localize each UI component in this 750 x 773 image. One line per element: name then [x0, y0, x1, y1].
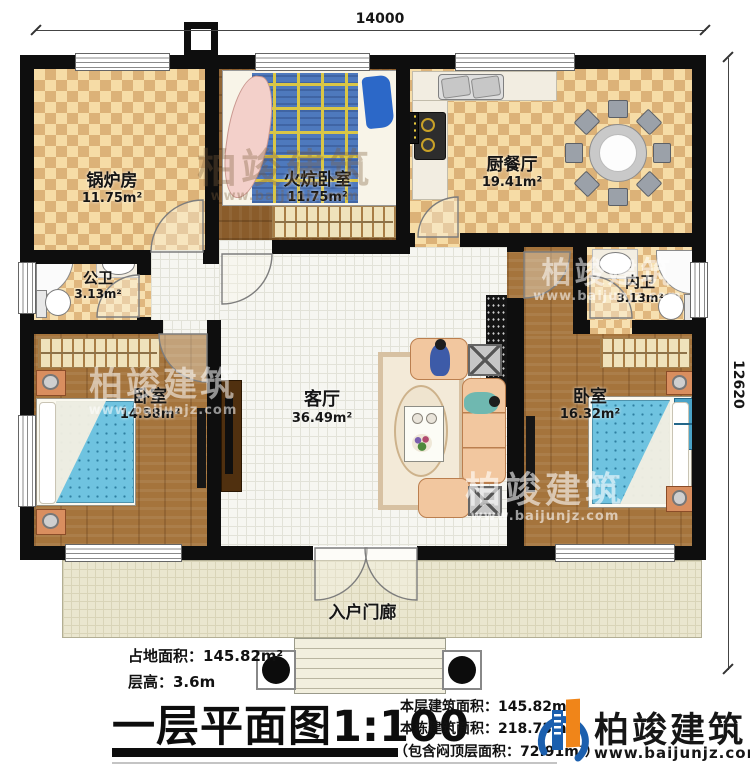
floor-boiler-room: [34, 69, 205, 250]
wall-boiler-kang: [205, 69, 219, 250]
wall-left-seg1: [20, 55, 34, 262]
stove-burner-top: [421, 118, 435, 132]
window-bedroom-left-west: [18, 415, 36, 507]
bedroom-left-nightstand-top: [36, 370, 66, 396]
info-site-area: 占地面积：145.82m²: [128, 645, 283, 666]
bedroom-left-nightstand-bottom: [36, 509, 66, 535]
title-underline-thick: [112, 748, 398, 757]
floor-bedl-doorsill: [163, 320, 207, 334]
bedroom-left-wardrobe: [38, 338, 160, 368]
floorplan-canvas: 锅炉房 11.75m² 火炕卧室 11.75m² 厨餐厅 19.41m² 公卫 …: [0, 0, 750, 773]
wall-kang-bottom: [272, 240, 410, 254]
brand-url: www.baijunjz.com: [594, 744, 750, 762]
label-boiler-room: 锅炉房: [52, 172, 172, 191]
stove-burner-bottom: [421, 138, 435, 152]
label-bedroom-left: 卧室: [105, 388, 195, 407]
label-bedroom-right-area: 16.32m²: [540, 408, 640, 422]
label-living-room-area: 36.49m²: [277, 412, 367, 426]
coffee-table-cup-1: [412, 413, 423, 424]
wall-top-seg3: [370, 55, 455, 69]
armchair-bottom: [418, 478, 470, 518]
label-boiler-room-area: 11.75m²: [52, 192, 172, 206]
label-kitchen-area: 19.41m²: [452, 176, 572, 190]
bedroom-left-pillow: [39, 402, 56, 504]
wall-bottom-seg3: [417, 546, 555, 560]
wall-right-seg2: [692, 318, 706, 560]
plan-title: 一层平面图: [112, 702, 332, 752]
bedroom-right-dresser-divider: [674, 423, 693, 425]
end-table-top: [468, 344, 502, 376]
label-inner-bath-area: 3.13m²: [600, 292, 680, 305]
bedroom-right-wardrobe: [600, 338, 690, 368]
wall-top-seg2: [170, 55, 255, 69]
floor-kang-doorsill: [219, 240, 272, 254]
dimension-line-top: [35, 30, 706, 31]
wall-kitchen-bottom-seg2: [460, 233, 692, 247]
porch-steps: [294, 638, 446, 694]
label-public-bath: 公卫: [53, 270, 143, 287]
brand-logo-icon: [532, 698, 590, 768]
window-public-bath: [18, 262, 36, 314]
end-table-bottom: [468, 486, 502, 516]
wall-bedleft-east: [207, 320, 221, 546]
person-sitting-head: [435, 339, 446, 350]
sink-inner: [599, 252, 632, 275]
window-bedroom-right-south: [555, 544, 675, 562]
window-kang-bedroom: [255, 53, 370, 71]
bedroom-right-nightstand-bottom: [666, 486, 694, 512]
wall-innerbath-bottom-seg1: [573, 320, 590, 334]
dimension-right-value: 12620: [730, 360, 746, 409]
chimney: [184, 22, 218, 57]
window-boiler: [75, 53, 170, 71]
window-kitchen: [455, 53, 575, 71]
wall-bottom-seg4: [675, 546, 706, 560]
wall-living-bedright-seg2: [507, 298, 524, 546]
wall-top-seg4: [575, 55, 692, 69]
dining-chair-n: [608, 100, 628, 118]
dimension-line-right: [728, 58, 729, 670]
label-bedroom-left-area: 14.58m²: [100, 408, 200, 422]
kitchen-sink-basin-left: [441, 75, 472, 99]
floor-bedr-doorsill: [507, 252, 524, 298]
coffee-table-flowers: [412, 434, 432, 452]
bedroom-right-tv: [526, 416, 535, 492]
info-floor-height: 层高：3.6m: [128, 671, 215, 692]
floor-kitchen-doorsill: [415, 233, 460, 247]
dimension-top-value: 14000: [330, 12, 430, 27]
label-kang-bedroom-area: 11.75m²: [235, 191, 400, 205]
wall-publicbath-bottom: [20, 320, 163, 334]
label-public-bath-area: 3.13m²: [53, 288, 143, 301]
wall-boiler-bottom-seg1: [20, 250, 151, 264]
window-bedroom-left-south: [65, 544, 182, 562]
wall-bottom-seg2: [182, 546, 313, 560]
coffee-table-cup-2: [426, 413, 437, 424]
living-tv: [225, 398, 233, 474]
wall-innerbath-bottom-seg2: [632, 320, 692, 334]
wall-kang-kitchen: [396, 69, 410, 233]
label-kang-bedroom: 火炕卧室: [235, 171, 400, 190]
floor-inner-bath-doorsill: [590, 320, 632, 334]
window-inner-bath: [690, 262, 708, 318]
label-inner-bath: 内卫: [600, 274, 680, 291]
person-lying-head: [489, 396, 500, 407]
porch-floor: [62, 560, 702, 638]
dining-chair-s: [608, 188, 628, 206]
wall-kitchen-bottom-seg1: [396, 233, 415, 247]
kang-bed-blue-pillow: [361, 75, 394, 130]
wall-right-seg1: [692, 55, 706, 262]
bedroom-right-nightstand-top: [666, 371, 694, 395]
wall-living-bedright-seg1: [507, 247, 524, 252]
wall-bottom-seg1: [20, 546, 65, 560]
kang-bedroom-wardrobe: [272, 206, 396, 238]
label-porch: 入户门廊: [295, 604, 430, 623]
label-kitchen: 厨餐厅: [452, 156, 572, 175]
label-living-room: 客厅: [284, 390, 360, 410]
label-bedroom-right: 卧室: [545, 388, 635, 407]
dining-table-top: [599, 134, 637, 172]
kitchen-sink-basin-right: [471, 75, 502, 99]
dining-chair-e: [653, 143, 671, 163]
wall-boiler-bottom-seg2: [203, 250, 219, 264]
floor-bedroom-right-corridor: [524, 247, 573, 334]
title-underline-thin: [112, 762, 557, 764]
porch-column-right-shaft: [448, 656, 476, 684]
